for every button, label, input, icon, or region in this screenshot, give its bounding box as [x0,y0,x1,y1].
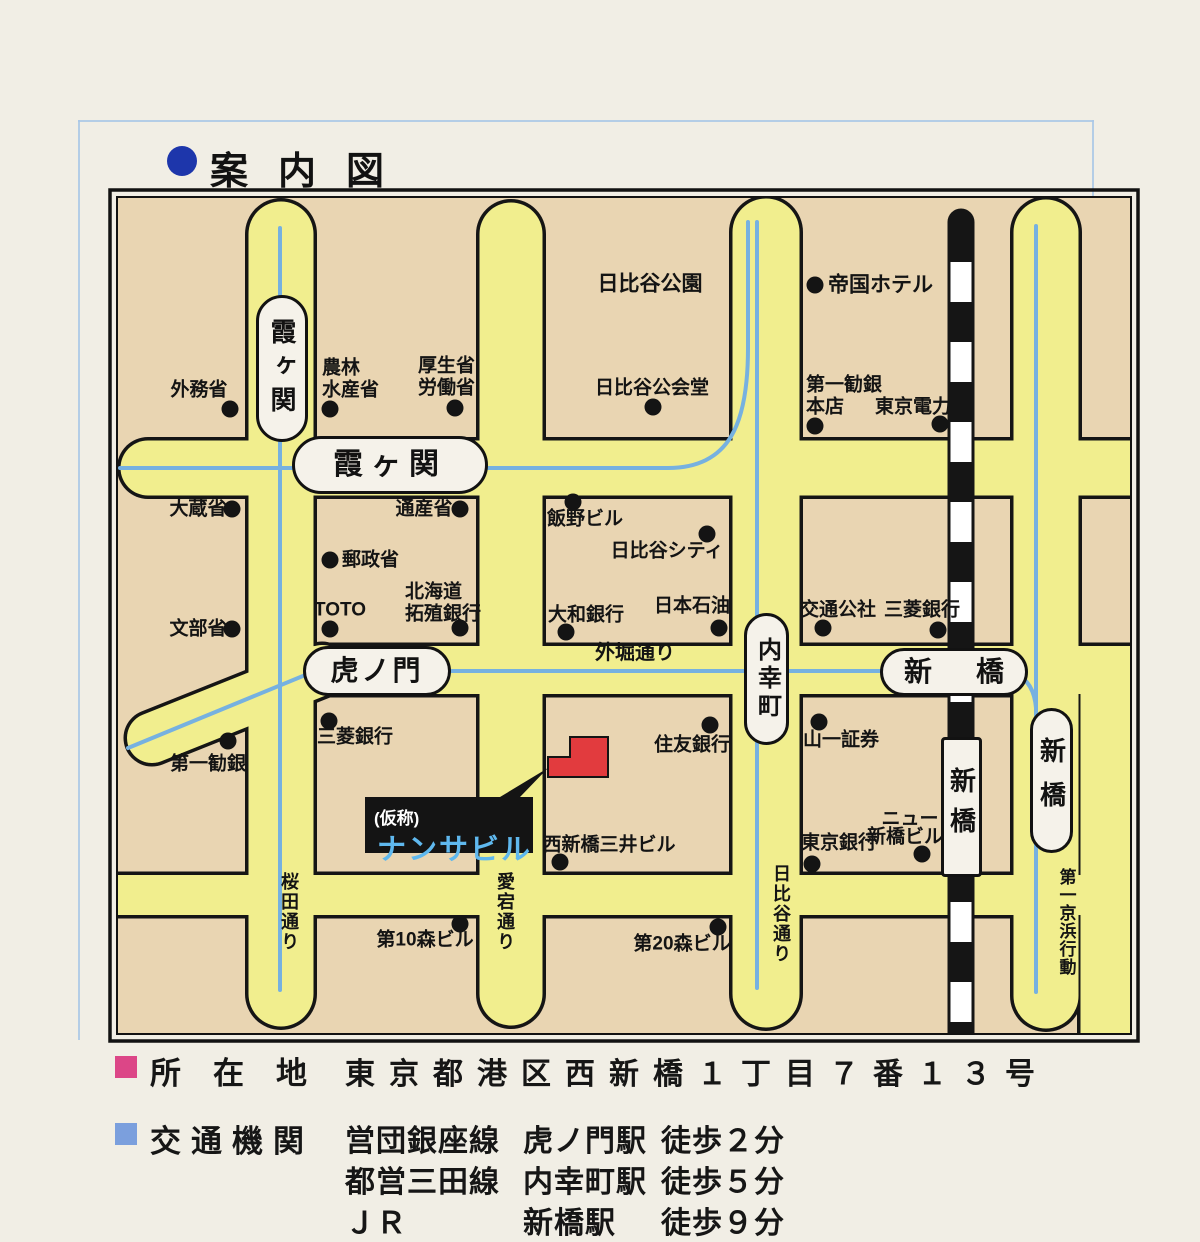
building-dot [447,400,464,417]
page-frame-top [78,120,1094,122]
page-frame-left [78,120,80,1040]
label-mitsubishi-bank-west: 三菱銀行 [317,728,393,747]
building-dot [804,856,821,873]
label-tokyo-bank: 東京銀行 [801,834,877,853]
label-kosei-line1: 厚生省 [418,357,475,376]
building-dot [807,277,824,294]
route-station: 虎ノ門駅 [523,1116,661,1157]
building-dot [645,399,662,416]
route-line: 都営三田線 [345,1157,523,1198]
building-dot [322,552,339,569]
building-dot [811,714,828,731]
label-okurasho: 大蔵省 [169,500,226,519]
landmark-name: ナンサビル [377,826,532,868]
label-mombusho: 文部省 [169,620,226,639]
label-atago-dori: 愛宕通り [496,872,514,952]
access-routes: 営団銀座線 虎ノ門駅 徒歩２分 都営三田線 内幸町駅 徒歩５分 ＪＲ 新橋駅 徒… [345,1116,785,1239]
building-dot [452,501,469,518]
building-dot [930,622,947,639]
route-walk: 徒歩２分 [661,1116,785,1157]
label-tsusansho: 通産省 [395,500,452,519]
address-bullet-icon [115,1056,137,1078]
label-mori10: 第10森ビル [376,931,473,950]
route-line: 営団銀座線 [345,1116,523,1157]
label-hokkaido-line2: 拓殖銀行 [405,605,481,624]
label-sakurada-dori: 桜田通り [280,872,298,952]
route-station: 内幸町駅 [523,1157,661,1198]
access-bullet-icon [115,1123,137,1145]
label-kosei-line2: 労働省 [418,379,475,398]
label-gaimusho: 外務省 [170,381,227,400]
label-hibiya-hall: 日比谷公会堂 [595,379,709,398]
label-daiichi-kangin: 第一勧銀 [170,755,246,774]
route-walk: 徒歩９分 [661,1198,785,1239]
station-kasumigaseki: 霞ヶ関 [292,436,488,494]
label-sotobori-dori: 外堀通り [595,643,675,663]
label-mitsubishi-bank-east: 三菱銀行 [884,601,960,620]
building-dot [815,620,832,637]
label-hokkaido-line1: 北海道 [405,583,462,602]
building-dot [558,624,575,641]
label-iino-bldg: 飯野ビル [547,510,623,529]
building-dot [702,717,719,734]
route-walk: 徒歩５分 [661,1157,785,1198]
label-daiichi-keihin: 第一京浜行動 [1058,868,1075,976]
label-hibiya-dori: 日比谷通り [772,864,790,964]
building-dot [807,418,824,435]
station-shimbashi-right: 新橋 [1030,708,1073,853]
building-dot [552,854,569,871]
label-yamaichi: 山一証券 [803,731,879,750]
label-tokyo-denryoku: 東京電力 [875,398,951,417]
label-hibiya-city: 日比谷シティ [611,542,724,561]
building-dot [222,401,239,418]
label-new-shimbashi-line2: 新橋ビル [867,828,943,847]
label-mori20: 第20森ビル [633,935,730,954]
building-dot [932,416,949,433]
label-nishishimbashi-mitsui: 西新橋三井ビル [542,836,675,855]
station-shimbashi-jr: 新橋 [941,737,982,877]
label-daiwa-bank: 大和銀行 [548,606,624,625]
page-title: 案内図 [210,140,414,195]
label-yuseisho: 郵政省 [342,551,399,570]
station-kasumigaseki-vertical: 霞ヶ関 [256,295,308,442]
label-norin-line2: 水産省 [322,381,379,400]
address-value: 東京都港区西新橋１丁目７番１３号 [345,1049,1049,1093]
station-toranomon: 虎ノ門 [303,646,451,696]
title-bullet-icon [167,146,197,176]
route-line: ＪＲ [345,1198,523,1239]
label-norin-line1: 農林 [322,359,360,378]
access-label: 交通機関 [150,1116,314,1161]
building-dot [711,620,728,637]
label-sumitomo-bank: 住友銀行 [654,736,730,755]
label-nihon-sekiyu: 日本石油 [654,597,730,616]
label-daiichi-honten-line2: 本店 [806,398,844,417]
building-dot [322,621,339,638]
label-hibiya-park: 日比谷公園 [598,274,703,295]
label-daiichi-honten-line1: 第一勧銀 [806,376,882,395]
address-label: 所在地 [150,1048,339,1093]
label-toto: TOTO [314,601,366,620]
building-dot [914,846,931,863]
route-station: 新橋駅 [523,1198,661,1239]
building-dot [220,733,237,750]
station-uchisaiwaicho: 内幸町 [744,613,789,745]
label-kotsu-kosha: 交通公社 [800,601,876,620]
station-shimbashi: 新橋 [880,648,1028,696]
building-dot [322,401,339,418]
label-teikoku-hotel: 帝国ホテル [828,275,933,296]
